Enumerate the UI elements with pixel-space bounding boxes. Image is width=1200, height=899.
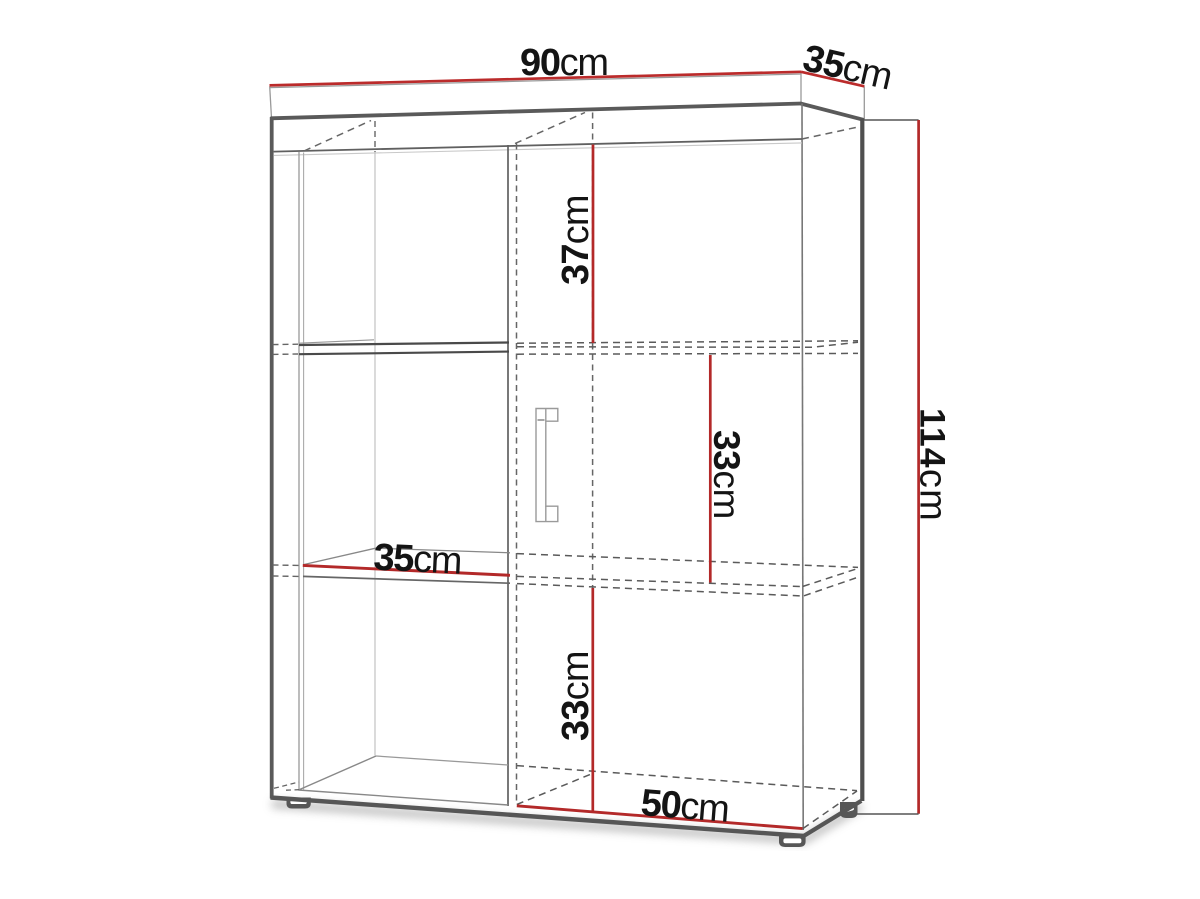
svg-text:35cm: 35cm <box>373 537 463 583</box>
svg-text:114cm: 114cm <box>912 408 954 522</box>
svg-text:33cm: 33cm <box>555 651 597 741</box>
svg-text:50cm: 50cm <box>639 782 730 831</box>
svg-text:37cm: 37cm <box>555 195 597 285</box>
svg-text:90cm: 90cm <box>520 42 608 84</box>
svg-text:33cm: 33cm <box>706 430 747 519</box>
